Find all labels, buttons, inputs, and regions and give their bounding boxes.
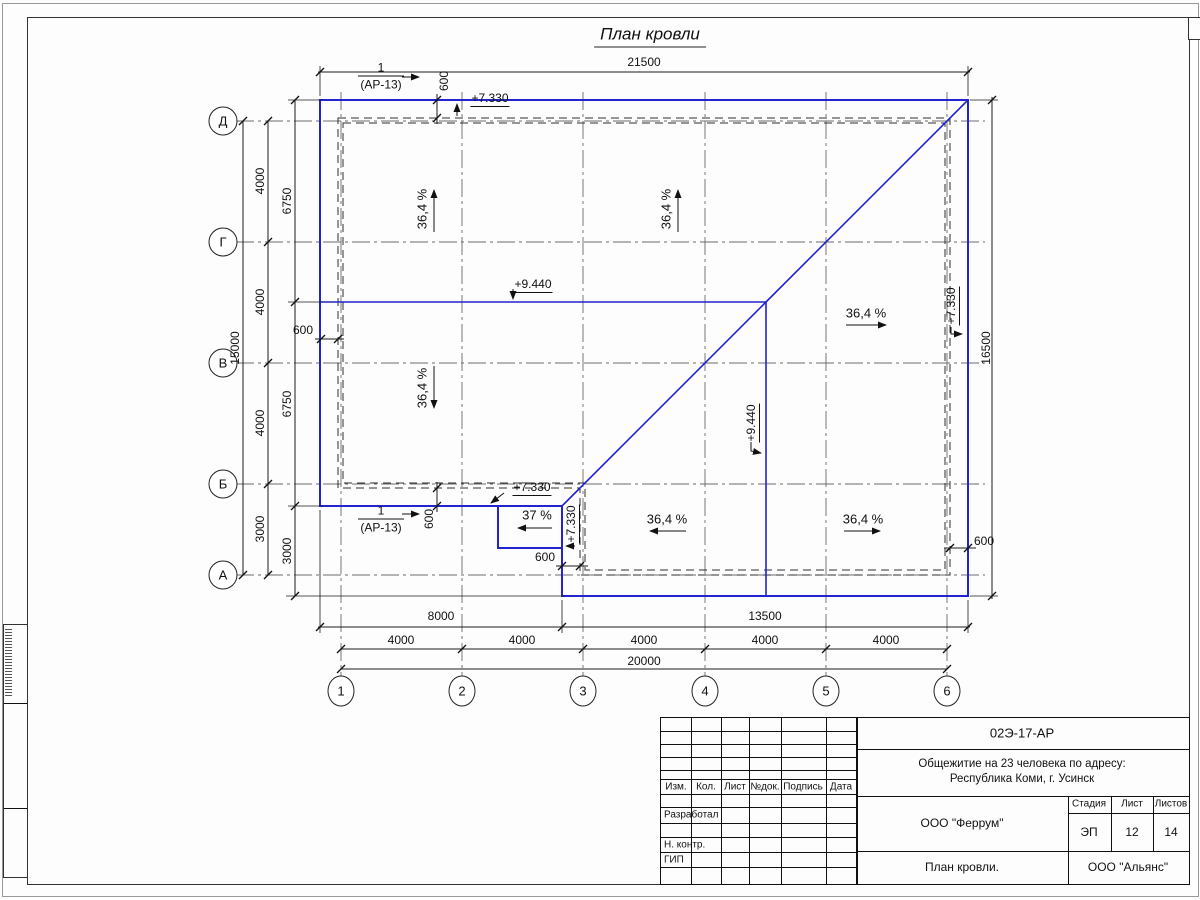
tb-vline <box>781 718 782 884</box>
tb-doc-code: 02Э-17-АР <box>990 726 1054 741</box>
dim-bottom-span-4: 4000 <box>752 633 779 647</box>
tb-vline <box>1111 796 1112 851</box>
elevation-mark-bottom: +7.330 <box>512 480 551 494</box>
axis-col-1: 1 <box>328 676 355 707</box>
tb-org: ООО "Феррум" <box>921 816 1004 830</box>
dim-parapet-offset-right: 600 <box>974 534 994 548</box>
axis-row-b: Б <box>209 470 238 499</box>
axis-row-a: А <box>209 561 238 590</box>
section-number: 1 <box>358 61 404 77</box>
axis-col-6: 6 <box>934 676 961 707</box>
tb-sheet-name: План кровли. <box>925 860 999 874</box>
elevation-mark-step: +7.330 <box>564 504 578 543</box>
dim-bottom-wall-1: 8000 <box>428 609 455 623</box>
section-sheet-ref: (АР-13) <box>354 520 408 535</box>
axis-col-2: 2 <box>449 676 476 707</box>
dimension-ticks <box>239 68 996 673</box>
tb-sheets-label: Листов <box>1155 799 1188 810</box>
dim-left-wall-1: 6750 <box>280 188 294 215</box>
dim-left-wall-3: 3000 <box>280 538 294 565</box>
tb-hline <box>661 807 856 808</box>
slope-arrows <box>434 190 886 531</box>
tb-hline <box>856 851 1189 852</box>
section-sheet-ref: (АР-13) <box>354 77 408 92</box>
slope-label-nw: 36,4 % <box>415 189 430 229</box>
dim-left-span-4: 3000 <box>253 516 267 543</box>
tb-hline <box>661 794 856 795</box>
tb-vline <box>826 718 827 884</box>
dim-parapet-offset-bottomleft: 600 <box>422 509 436 529</box>
dim-parapet-offset-top: 600 <box>437 71 451 91</box>
slope-label-s1: 36,4 % <box>647 512 687 527</box>
tb-stage-value: ЭП <box>1080 825 1097 839</box>
tb-role-ncontrol: Н. контр. <box>664 840 705 851</box>
elevation-mark-right: +7.330 <box>944 286 958 325</box>
tb-stage-label: Стадия <box>1072 799 1106 810</box>
section-mark-top: 1 (АР-13) <box>354 61 408 92</box>
slope-label-n: 36,4 % <box>659 189 674 229</box>
slope-label-s2: 36,4 % <box>843 512 883 527</box>
tb-hline <box>661 823 856 824</box>
tb-project-line1: Общежитие на 23 человека по адресу: <box>918 758 1125 770</box>
slope-label-w: 36,4 % <box>415 368 430 408</box>
drawing-sheet: План кровли <box>0 0 1200 900</box>
tb-role-developer: Разработал <box>664 810 718 821</box>
tb-hline <box>661 852 856 853</box>
dim-top-total: 21500 <box>627 55 660 69</box>
dim-bottom-span-2: 4000 <box>509 633 536 647</box>
axis-row-g: Г <box>209 228 238 257</box>
tb-hline <box>661 744 856 745</box>
dim-bottom-total: 20000 <box>627 654 660 668</box>
tb-project-line2: Республика Коми, г. Усинск <box>950 773 1094 785</box>
tb-contractor: ООО "Альянс" <box>1088 860 1168 874</box>
elevation-mark-ridge: +9.440 <box>513 277 552 291</box>
tb-hline <box>661 779 856 780</box>
section-mark-bottom: 1 (АР-13) <box>354 504 408 535</box>
axis-col-4: 4 <box>692 676 719 707</box>
tb-col-list: Лист <box>724 782 746 793</box>
dim-bottom-span-3: 4000 <box>631 633 658 647</box>
extension-lines <box>286 66 998 633</box>
axis-col-5: 5 <box>813 676 840 707</box>
dimension-lines <box>243 72 992 669</box>
tb-col-kol: Кол. <box>696 782 716 793</box>
slope-label-porch: 37 % <box>522 508 552 523</box>
elevation-mark-ridge-v: +9.440 <box>744 403 758 442</box>
tb-role-gip: ГИП <box>664 855 684 866</box>
tb-sheet-label: Лист <box>1121 799 1143 810</box>
dim-left-span-2: 4000 <box>253 289 267 316</box>
tb-hline <box>661 757 856 758</box>
dim-right-total: 16500 <box>979 331 993 364</box>
dim-left-span-1: 4000 <box>253 168 267 195</box>
tb-vline <box>749 718 750 884</box>
title-block: Изм. Кол. Лист №док. Подпись Дата Разраб… <box>660 717 1190 885</box>
dim-parapet-offset-left: 600 <box>293 323 313 337</box>
tb-hline <box>661 731 856 732</box>
section-number: 1 <box>358 504 404 520</box>
tb-hline <box>661 867 856 868</box>
tb-sheet-number: 12 <box>1125 825 1138 839</box>
grid-lines <box>236 92 985 678</box>
tb-sheets-total: 14 <box>1164 825 1177 839</box>
tb-hline <box>661 770 856 771</box>
tb-col-izm: Изм. <box>665 782 686 793</box>
axis-row-d: Д <box>209 107 238 136</box>
dim-parapet-offset-porch: 600 <box>535 550 555 564</box>
tb-vline <box>1068 796 1069 884</box>
dim-left-span-3: 4000 <box>253 410 267 437</box>
tb-col-ndok: №док. <box>750 782 779 793</box>
axis-col-3: 3 <box>570 676 597 707</box>
elevation-mark-top: +7.330 <box>470 91 509 105</box>
dim-bottom-span-1: 4000 <box>388 633 415 647</box>
slope-label-e: 36,4 % <box>846 306 886 321</box>
dim-bottom-wall-2: 13500 <box>748 609 781 623</box>
tb-hline <box>661 837 856 838</box>
tb-hline <box>856 796 1189 797</box>
section-mark-arrows <box>402 77 419 514</box>
tb-hline <box>1068 813 1189 814</box>
tb-vline <box>691 718 692 884</box>
tb-hline <box>856 749 1189 750</box>
tb-divider <box>856 718 858 884</box>
tb-vline <box>721 718 722 884</box>
dim-bottom-span-5: 4000 <box>873 633 900 647</box>
dim-left-total: 15000 <box>228 331 242 364</box>
dim-left-wall-2: 6750 <box>280 391 294 418</box>
tb-col-data: Дата <box>830 782 852 793</box>
tb-col-podpis: Подпись <box>783 782 823 793</box>
